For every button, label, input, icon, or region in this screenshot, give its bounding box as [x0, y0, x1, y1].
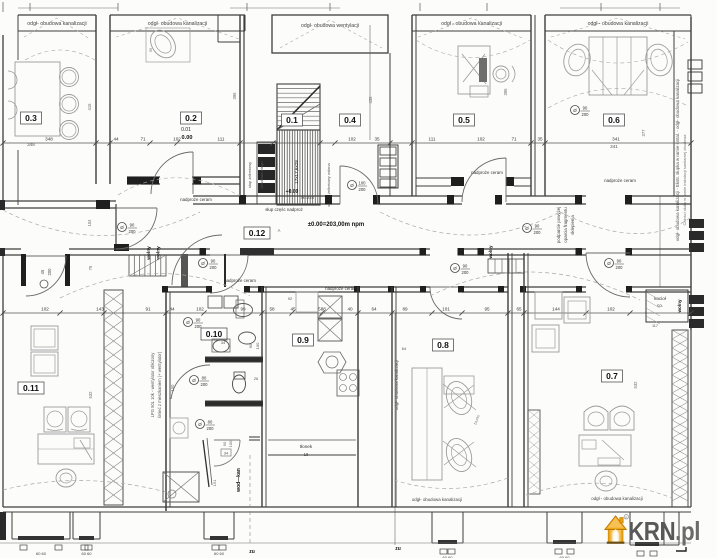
- svg-text:92: 92: [288, 296, 293, 301]
- svg-text:532: 532: [88, 391, 93, 399]
- svg-text:100: 100: [255, 342, 260, 349]
- svg-text:117: 117: [652, 324, 658, 328]
- svg-text:102: 102: [607, 307, 615, 312]
- svg-text:wolny: wolny: [677, 299, 682, 313]
- svg-text:odgł - obudowa kanalizacji: odgł - obudowa kanalizacji: [591, 496, 643, 501]
- svg-text:100: 100: [359, 181, 367, 186]
- svg-text:0.12: 0.12: [249, 228, 266, 238]
- svg-text:0.4: 0.4: [344, 115, 356, 125]
- svg-text:słup żelbetowy: słup żelbetowy: [247, 162, 252, 188]
- svg-text:200: 200: [534, 230, 542, 235]
- svg-text:odgł- obudowa wentylacji: odgł- obudowa wentylacji: [301, 23, 359, 29]
- svg-text:415: 415: [87, 103, 92, 111]
- svg-text:90: 90: [535, 224, 540, 229]
- svg-text:348: 348: [45, 137, 53, 142]
- svg-text:80: 80: [202, 376, 207, 381]
- svg-text:oparcia fragmentu: oparcia fragmentu: [563, 207, 568, 243]
- svg-text:Całości słuka w ramie instal: Całości słuka w ramie instalacji sanitar…: [682, 134, 687, 226]
- svg-text:nadproże ceram: nadproże ceram: [224, 278, 256, 283]
- svg-text:64: 64: [402, 346, 407, 351]
- svg-text:co.: co.: [657, 303, 663, 308]
- svg-text:34: 34: [221, 340, 226, 345]
- svg-text:532: 532: [633, 381, 638, 389]
- svg-text:90: 90: [222, 441, 227, 446]
- svg-text:100: 100: [170, 384, 175, 392]
- svg-text:80: 80: [208, 420, 213, 425]
- svg-text:71: 71: [140, 137, 146, 142]
- svg-text:99: 99: [240, 307, 246, 312]
- svg-text:0.7: 0.7: [606, 371, 618, 381]
- svg-text:0.3: 0.3: [25, 113, 37, 123]
- svg-text:90: 90: [463, 264, 468, 269]
- svg-text:435: 435: [368, 96, 373, 104]
- svg-text:200: 200: [201, 382, 209, 387]
- svg-text:111: 111: [218, 137, 225, 142]
- svg-text:104: 104: [87, 219, 92, 227]
- svg-text:200: 200: [582, 112, 590, 117]
- svg-text:65: 65: [516, 307, 522, 312]
- svg-text:nadproże ceram: nadproże ceram: [180, 197, 212, 202]
- svg-text:35: 35: [537, 137, 543, 142]
- svg-text:90: 90: [149, 48, 153, 52]
- svg-text:90: 90: [248, 343, 253, 348]
- svg-text:odgł- obudowa kanalizacji: odgł- obudowa kanalizacji: [27, 21, 86, 27]
- svg-text:sklepienia: sklepienia: [570, 215, 575, 235]
- svg-text:Ø: Ø: [192, 378, 196, 383]
- svg-text:Ø: Ø: [453, 266, 457, 271]
- svg-text:0.6: 0.6: [608, 115, 620, 125]
- svg-text:Ø: Ø: [186, 320, 190, 325]
- svg-text:143: 143: [96, 307, 104, 312]
- svg-text:+0.00: +0.00: [286, 189, 299, 195]
- svg-text:0.9: 0.9: [297, 335, 309, 345]
- svg-text:90: 90: [583, 106, 588, 111]
- svg-text:101: 101: [442, 307, 450, 312]
- svg-text:102: 102: [173, 137, 181, 142]
- svg-text:26: 26: [254, 376, 259, 381]
- svg-text:0.10: 0.10: [206, 329, 223, 339]
- svg-text:151: 151: [212, 479, 217, 486]
- svg-text:102: 102: [196, 307, 204, 312]
- svg-text:35: 35: [374, 137, 380, 142]
- svg-text:śmieć z mieszkaniem (+ wentyla: śmieć z mieszkaniem (+ wentylator): [157, 351, 162, 418]
- svg-text:341: 341: [610, 144, 618, 149]
- svg-text:95: 95: [484, 307, 490, 312]
- svg-text:200: 200: [195, 324, 203, 329]
- svg-text:102: 102: [348, 137, 356, 142]
- svg-text:zu: zu: [395, 546, 401, 552]
- svg-text:90: 90: [196, 318, 201, 323]
- svg-text:395: 395: [232, 92, 237, 100]
- svg-text:Ø: Ø: [120, 225, 124, 230]
- svg-text:zu: zu: [249, 549, 255, 555]
- svg-text:0.2: 0.2: [185, 113, 197, 123]
- svg-text:Ø: Ø: [525, 226, 529, 231]
- svg-text:395: 395: [503, 88, 508, 96]
- svg-text:nadproże ceram: nadproże ceram: [604, 178, 636, 183]
- svg-text:Ø: Ø: [198, 422, 202, 427]
- svg-text:90: 90: [211, 259, 216, 264]
- svg-text:40: 40: [347, 307, 353, 312]
- svg-text:102: 102: [477, 137, 485, 142]
- svg-text:71: 71: [511, 137, 517, 142]
- svg-text:60 60: 60 60: [36, 551, 47, 556]
- svg-text:odgł - obudowa kanalizacji: odgł - obudowa kanalizacji: [588, 21, 649, 27]
- svg-text:kocioł: kocioł: [654, 296, 666, 301]
- svg-text:KRN.pl: KRN.pl: [628, 516, 700, 546]
- svg-text:58: 58: [269, 307, 275, 312]
- svg-text:nadproże ceram: nadproże ceram: [471, 170, 503, 175]
- svg-text:200: 200: [616, 265, 624, 270]
- svg-text:200: 200: [207, 426, 215, 431]
- svg-text:0.8: 0.8: [437, 340, 449, 350]
- svg-text:0.11: 0.11: [23, 383, 39, 393]
- svg-text:200: 200: [47, 268, 52, 276]
- svg-text:Ø: Ø: [350, 183, 354, 188]
- svg-text:A: A: [278, 228, 281, 233]
- svg-text:102: 102: [41, 307, 49, 312]
- svg-text:377: 377: [641, 129, 646, 137]
- svg-text:91: 91: [145, 307, 151, 312]
- svg-text:64: 64: [371, 307, 377, 312]
- svg-text:588: 588: [318, 307, 326, 312]
- svg-text:0.1: 0.1: [286, 115, 298, 125]
- svg-text:±0.00=203,00m npm: ±0.00=203,00m npm: [308, 222, 365, 228]
- svg-text:100: 100: [228, 440, 233, 447]
- svg-text:90: 90: [617, 259, 622, 264]
- svg-text:wolny: wolny: [488, 245, 493, 259]
- svg-text:odgł- obudowa kanalizacji: odgł- obudowa kanalizacji: [412, 497, 462, 502]
- svg-text:odgł- obudowa kanalizacji - Ek: odgł- obudowa kanalizacji - Ekstr. słupk…: [675, 79, 680, 242]
- svg-text:obudowa biegu: obudowa biegu: [259, 161, 264, 188]
- svg-text:34: 34: [224, 451, 229, 456]
- svg-text:111: 111: [429, 137, 436, 142]
- svg-text:144: 144: [552, 307, 560, 312]
- svg-text:200: 200: [359, 187, 367, 192]
- svg-text:45: 45: [290, 307, 296, 312]
- svg-text:89: 89: [402, 307, 408, 312]
- svg-text:341: 341: [612, 137, 620, 142]
- svg-text:75: 75: [88, 265, 93, 270]
- svg-text:odgł- obudowa kanalizacji: odgł- obudowa kanalizacji: [394, 360, 399, 410]
- svg-text:wod—kan: wod—kan: [236, 468, 242, 493]
- svg-text:wolny: wolny: [146, 246, 152, 261]
- svg-text:0.5: 0.5: [458, 115, 470, 125]
- svg-text:45: 45: [40, 269, 45, 274]
- svg-text:tłonek: tłonek: [300, 444, 313, 449]
- svg-text:Ø: Ø: [607, 261, 611, 266]
- svg-text:0.01: 0.01: [181, 127, 191, 133]
- svg-text:0.00: 0.00: [182, 135, 193, 141]
- svg-text:17x17,6x28: 17x17,6x28: [294, 160, 299, 184]
- svg-text:200: 200: [462, 270, 470, 275]
- svg-text:słup częśc nadproż: słup częśc nadproż: [265, 207, 303, 212]
- svg-text:44: 44: [113, 137, 119, 142]
- svg-text:Ø: Ø: [201, 261, 205, 266]
- svg-text:Ø: Ø: [573, 108, 577, 113]
- svg-text:60 60: 60 60: [214, 551, 225, 556]
- svg-text:200: 200: [210, 265, 218, 270]
- svg-text:60 60: 60 60: [81, 551, 92, 556]
- svg-text:90: 90: [130, 223, 135, 228]
- svg-text:LPG 50L 10k - wentylator obłc: LPG 50L 10k - wentylator obłczony: [150, 352, 155, 418]
